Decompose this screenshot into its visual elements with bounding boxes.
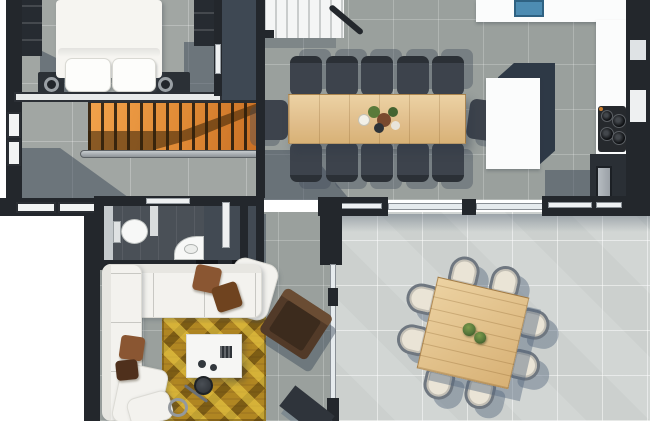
shower-glass-strip bbox=[104, 206, 113, 260]
glass-panel-2 bbox=[476, 203, 544, 210]
window-left-2 bbox=[7, 140, 21, 166]
bedroom-divider-wall bbox=[14, 92, 222, 102]
bedside-lamp-right bbox=[158, 77, 173, 92]
dining-chair bbox=[326, 142, 358, 182]
upper-landing-floor bbox=[220, 0, 258, 100]
cushion-brown-3 bbox=[118, 334, 145, 361]
burner-knob bbox=[599, 107, 603, 111]
stair-handrail bbox=[80, 150, 264, 158]
dining-chair bbox=[432, 56, 464, 96]
flower-white bbox=[358, 114, 370, 126]
staircase-shadow bbox=[88, 103, 258, 154]
hall-closet-floor bbox=[204, 206, 256, 260]
dining-chair bbox=[397, 142, 429, 182]
coffee-table-tray bbox=[220, 346, 232, 358]
toilet-tank bbox=[113, 221, 121, 243]
bathroom-partition bbox=[150, 206, 158, 236]
cushion-brown-4 bbox=[115, 359, 139, 381]
glass-panel-1 bbox=[388, 203, 464, 210]
vase bbox=[374, 123, 384, 133]
pillow-left bbox=[65, 58, 111, 92]
great-room-wall-shade bbox=[332, 214, 650, 232]
band-door-right-1 bbox=[548, 202, 592, 208]
duvet-fold bbox=[58, 48, 160, 57]
window-bottom-1 bbox=[16, 202, 56, 213]
coffee-table-bowl-2 bbox=[210, 364, 217, 371]
partition-wall-top bbox=[320, 197, 342, 265]
floor-plan bbox=[0, 0, 650, 421]
bedside-lamp-left bbox=[44, 77, 59, 92]
floor-lamp-base bbox=[168, 398, 188, 417]
dining-chair bbox=[361, 56, 393, 96]
washbasin-bowl bbox=[184, 244, 198, 254]
kitchen-sink bbox=[514, 0, 544, 17]
bathroom-door bbox=[146, 198, 190, 204]
right-wall-window-2 bbox=[630, 90, 646, 122]
band-stub bbox=[462, 199, 476, 215]
burner bbox=[612, 131, 626, 145]
dining-chair bbox=[290, 142, 322, 182]
window-bottom-2 bbox=[58, 202, 98, 213]
orange-staircase bbox=[88, 100, 258, 154]
band-door-right-2 bbox=[596, 202, 622, 208]
coffee-table bbox=[186, 334, 242, 378]
dining-chair bbox=[290, 56, 322, 96]
dining-chair bbox=[397, 56, 429, 96]
flower-cream bbox=[391, 121, 400, 130]
closet-divider bbox=[240, 206, 248, 260]
window-left-1 bbox=[7, 112, 21, 138]
flower-green-2 bbox=[388, 107, 398, 117]
stairhall-side-wall bbox=[256, 0, 265, 198]
dining-chair bbox=[432, 142, 464, 182]
closet-door bbox=[222, 202, 230, 248]
toilet-bowl bbox=[121, 219, 148, 244]
floor-lamp-head bbox=[194, 376, 213, 395]
cooktop bbox=[598, 106, 626, 152]
kitchen-island bbox=[486, 78, 540, 169]
pillow-right bbox=[112, 58, 156, 92]
cabinet-steel-front bbox=[596, 166, 612, 200]
dining-chair bbox=[326, 56, 358, 96]
dining-chair bbox=[361, 142, 393, 182]
coffee-table-bowl-1 bbox=[198, 360, 206, 368]
left-wall bbox=[6, 0, 22, 216]
right-wall-window-1 bbox=[630, 40, 646, 60]
partition-post-1 bbox=[328, 288, 338, 306]
white-stair-step-edge bbox=[264, 30, 274, 38]
kitchen-counter-top bbox=[476, 0, 628, 22]
flower-centerpiece bbox=[356, 104, 404, 136]
bedroom-door bbox=[215, 44, 221, 74]
living-west-wall bbox=[84, 214, 100, 421]
white-stairs-shadow bbox=[264, 38, 336, 48]
burner bbox=[612, 114, 626, 128]
